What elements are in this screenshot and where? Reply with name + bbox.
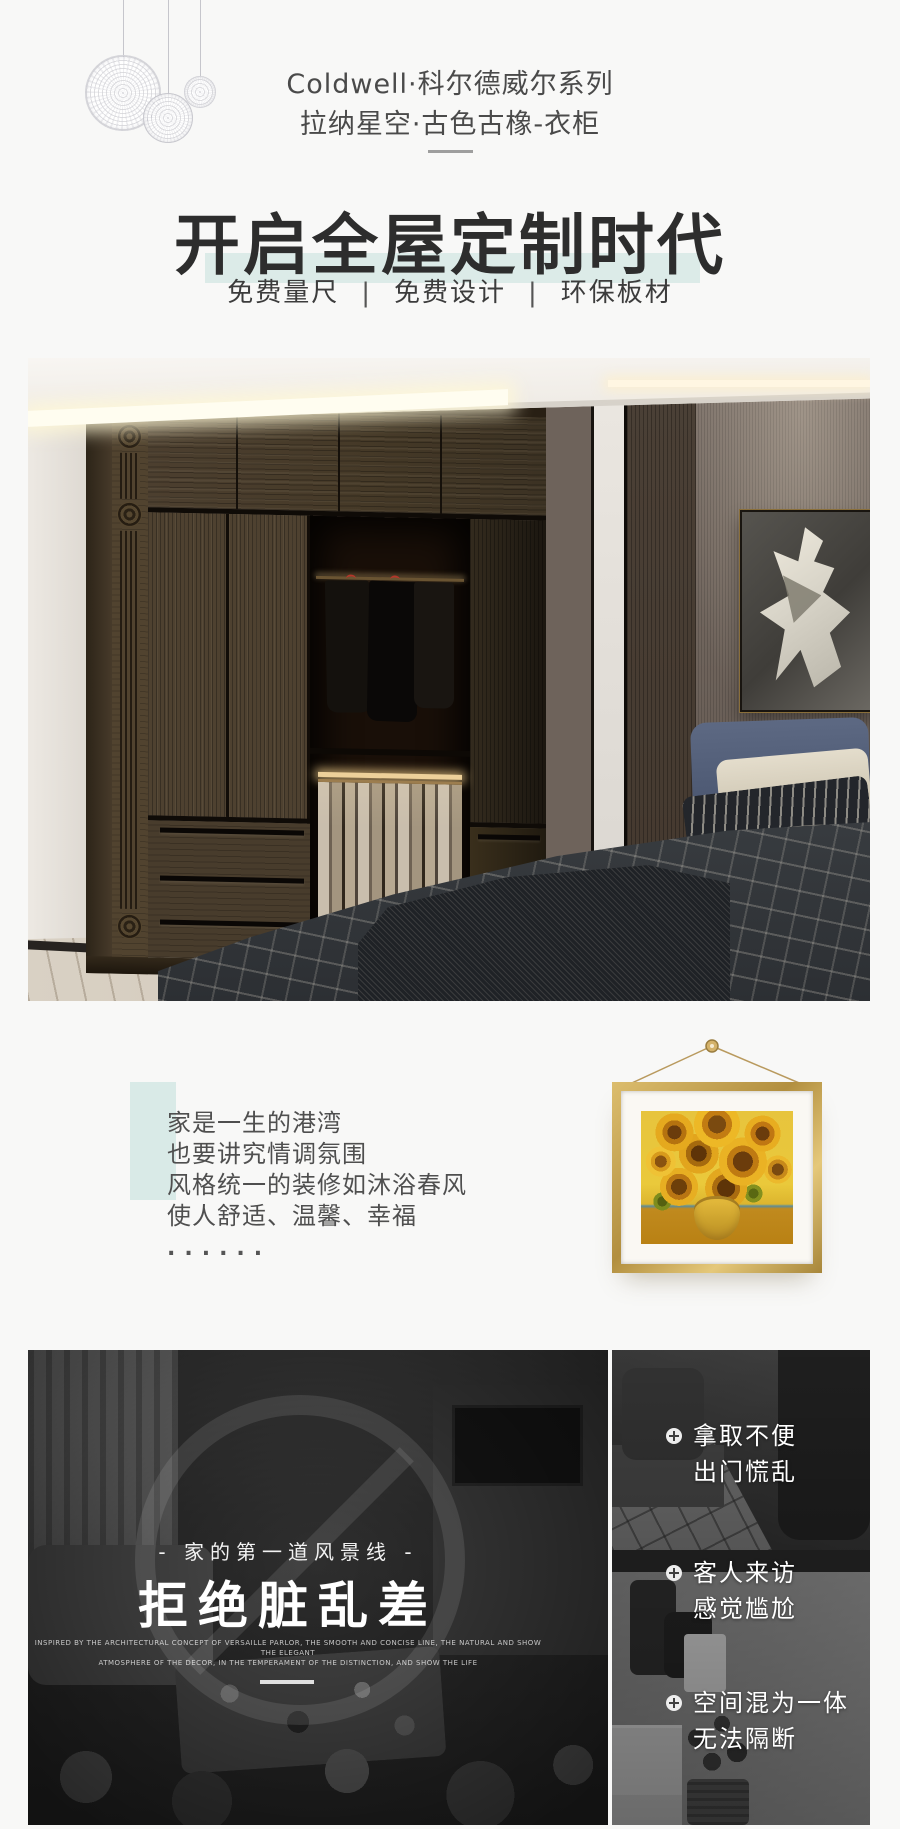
pain-line: 空间混为一体 [693,1685,849,1721]
wardrobe-doors-left [148,512,310,818]
pilaster-flutes [120,453,140,499]
pilaster-ornament [118,425,141,448]
circle-plus-icon [666,1428,682,1444]
product-detail-page: Coldwell·科尔德威尔系列 拉纳星空·古色古橡-衣柜 开启全屋定制时代 免… [0,0,900,1829]
brand-series-title: Coldwell·科尔德威尔系列 [0,62,900,101]
pain-line: 感觉尴尬 [693,1591,797,1627]
abstract-art-frame [740,510,870,712]
hanging-jacket [325,580,371,712]
circle-plus-icon [666,1695,682,1711]
pain-line: 无法隔断 [693,1721,849,1757]
subtext-line: INSPIRED BY THE ARCHITECTURAL CONCEPT OF… [28,1638,548,1658]
divider-dash [428,150,473,153]
feature-item: 环保板材 [561,278,673,308]
subtext-line: ATMOSPHERE OF THE DECOR, IN THE TEMPERAM… [28,1658,548,1668]
pain-point-item: 客人来访 感觉尴尬 [666,1555,797,1627]
circle-plus-icon [666,1565,682,1581]
pain-point-photos: 拿取不便 出门慌乱 客人来访 感觉尴尬 空间混为一体 无法隔断 [612,1350,870,1825]
pain-point-text: 拿取不便 出门慌乱 [693,1418,797,1490]
pilaster-ornament [118,915,141,938]
wardrobe-door-right [470,519,546,824]
cabinet-divider [236,411,238,509]
comparison-tagline: - 家的第一道风景线 - [28,1536,548,1565]
intro-line: 也要讲究情调氛围 [167,1139,467,1170]
wardrobe-top-cabinets [148,409,546,520]
product-name: 拉纳星空·古色古橡-衣柜 [0,102,900,141]
sunflower-painting-frame [612,1082,822,1273]
feature-item: 免费量尺 [227,278,339,308]
intro-copy: 家是一生的港湾 也要讲究情调氛围 风格统一的装修如沐浴春风 使人舒适、温馨、幸福 [167,1108,467,1232]
wardrobe-pilaster [112,397,148,975]
feature-item: 免费设计 [394,278,506,308]
cabinet-divider [338,413,340,511]
feature-list: 免费量尺|免费设计|环保板材 [0,272,900,309]
pain-point-text: 空间混为一体 无法隔断 [693,1685,849,1757]
niche-shelf [310,748,470,757]
intro-line: 风格统一的装修如沐浴春风 [167,1170,467,1201]
comparison-title: 拒绝脏乱差 [28,1566,548,1638]
door-gap [226,514,229,817]
cabinet-divider [440,415,442,513]
comparison-subtext-en: INSPIRED BY THE ARCHITECTURAL CONCEPT OF… [28,1638,548,1668]
painting-vase [694,1196,740,1240]
cove-light [608,380,870,387]
pain-line: 客人来访 [693,1555,797,1591]
intro-line: 使人舒适、温馨、幸福 [167,1201,467,1232]
pilaster-flutes [120,531,140,909]
pain-point-item: 拿取不便 出门慌乱 [666,1418,797,1490]
bedroom-photo [28,358,870,1001]
hanging-jacket [414,582,454,709]
wardrobe-side-panel [86,396,112,974]
hanging-jacket [367,581,419,723]
intro-ellipsis: ...... [167,1236,271,1261]
feature-separator: | [528,278,539,308]
pain-line: 出门慌乱 [693,1454,797,1490]
pain-point-item: 空间混为一体 无法隔断 [666,1685,849,1757]
ornament-string [123,0,124,57]
messy-room-photo: - 家的第一道风景线 - 拒绝脏乱差 INSPIRED BY THE ARCHI… [28,1350,608,1825]
pain-line: 拿取不便 [693,1418,797,1454]
underline-bar [260,1680,314,1684]
wardrobe-open-niche [310,516,470,936]
intro-line: 家是一生的港湾 [167,1108,467,1139]
side-wall [28,410,90,945]
pilaster-ornament [118,503,141,526]
feature-separator: | [361,278,372,308]
sunflower-painting [641,1111,793,1244]
pain-point-text: 客人来访 感觉尴尬 [693,1555,797,1627]
